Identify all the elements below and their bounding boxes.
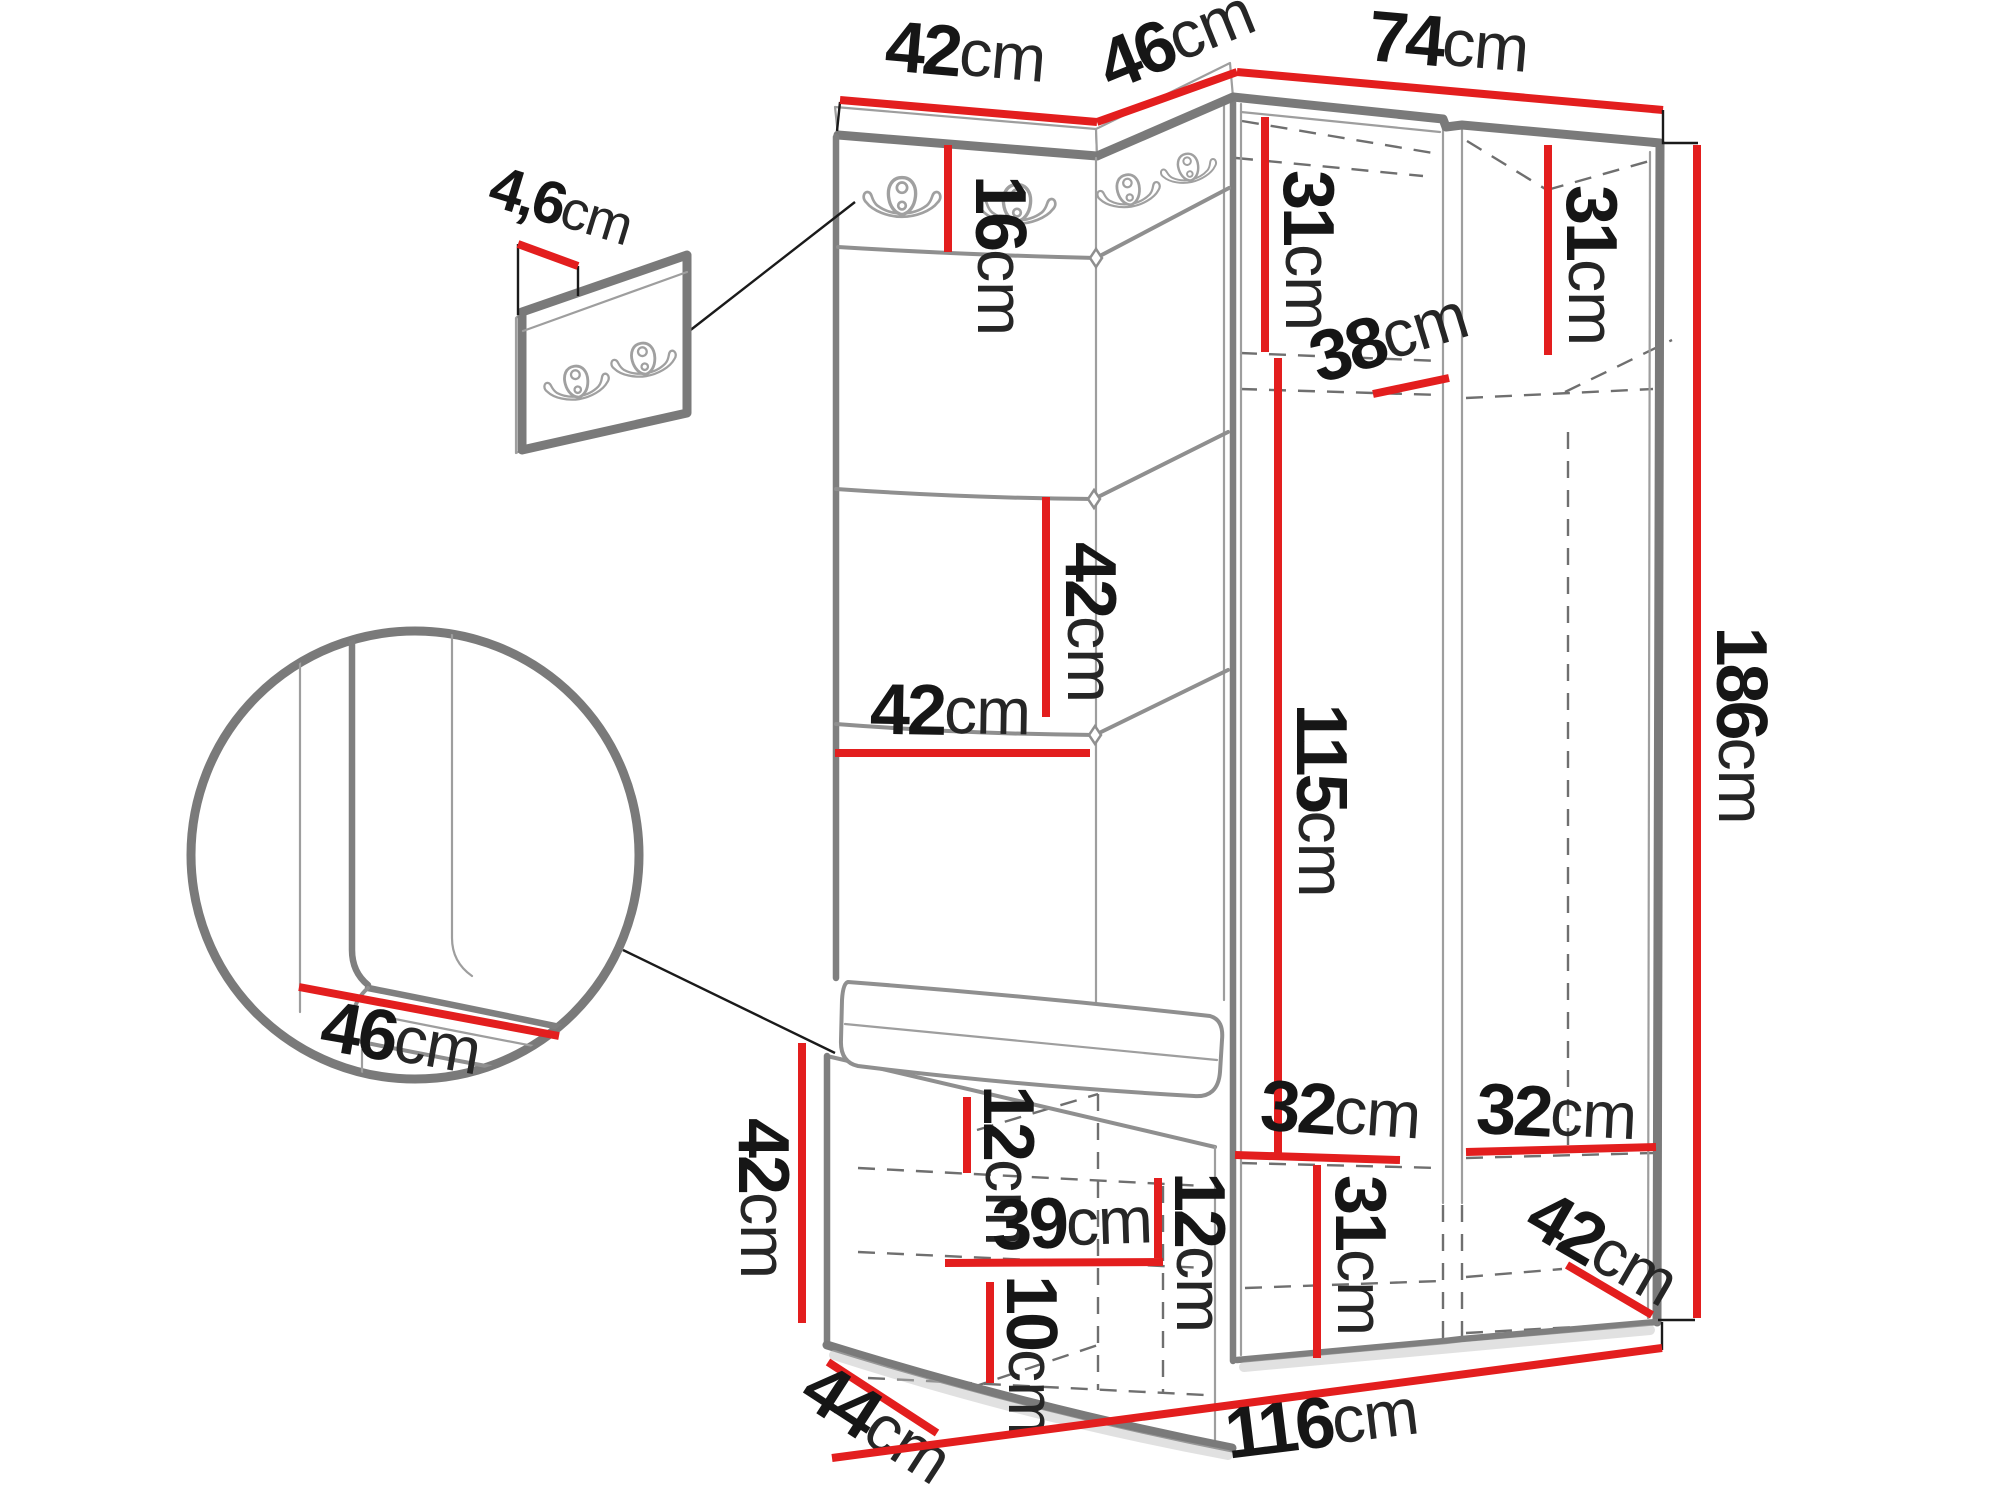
seam-2-corner [1094,432,1228,499]
seat-cushion-outline [841,982,1222,1096]
dim-label-top-panel-width: 42cm [882,6,1048,100]
wardrobe-right-inner-wall [1648,152,1650,1318]
diagram-stage: 42cm 46cm 74cm 4,6cm 16cm 31cm 31cm [0,0,2000,1500]
seat-corner-detail-circle [191,622,835,1094]
dim-bottom-section-height: 31cm [1317,1165,1400,1358]
dim-bottom-shelf-left: 32cm [1235,1066,1423,1160]
dim-right-section-top-height: 31cm [1548,145,1631,355]
dim-hook-band-height: 16cm [948,145,1040,335]
dim-label-panel-thickness: 4,6cm [482,152,641,259]
dim-label-right-section-top-height: 31cm [1551,185,1631,345]
panel-front-face [522,255,687,450]
dim-top-wardrobe-width: 74cm [1237,0,1663,110]
dim-label-left-section-top-height: 31cm [1268,170,1348,330]
dim-bottom-shelf-right: 32cm [1466,1069,1656,1157]
wardrobe-top-right-dash [1467,141,1547,190]
dim-label-total-width: 116cm [1221,1372,1422,1475]
dim-label-open-section-height: 115cm [1281,703,1361,896]
bottom-back-dash-right [1466,1269,1562,1277]
coat-hook-icon [1095,170,1162,212]
dim-label-top-wardrobe-width: 74cm [1365,0,1531,90]
dim-label-bottom-shelf-right: 32cm [1474,1069,1638,1157]
seat-cushion [841,982,1222,1096]
dim-panel-thickness: 4,6cm [482,152,641,266]
seam-hookband-corner [1096,188,1229,258]
circle-pointer-line [623,950,835,1053]
dim-open-section-height: 115cm [1278,358,1361,1156]
dim-label-total-height: 186cm [1701,626,1781,823]
diagram-canvas: 42cm 46cm 74cm 4,6cm 16cm 31cm 31cm [0,0,2000,1500]
dim-cushion-height: 42cm [1046,497,1130,717]
dim-line-panel-thickness [518,244,578,266]
dim-drawer-height: 12cm [1158,1172,1239,1332]
dim-line-shelf-depth [1373,378,1449,394]
dim-bottom-drawer-height: 10cm [990,1275,1071,1435]
dim-bracket-total-height-top [1663,110,1698,143]
coat-hook-icon [1158,148,1219,188]
dim-bottom-depth: 42cm [1513,1174,1692,1323]
dim-label-bottom-depth: 42cm [1513,1174,1692,1323]
dim-label-drawer-width: 39cm [990,1180,1153,1266]
dim-label-bench-height: 42cm [723,1118,803,1278]
bottom-shelf-left-dash [1240,1163,1440,1168]
dim-line-bottom-shelf-left [1235,1155,1400,1160]
wardrobe-right-edge [1657,143,1660,1322]
detail-pointer-line [688,202,855,332]
dim-bench-height: 42cm [723,1043,803,1323]
coat-hook-icon [864,178,941,217]
wardrobe-top-back-dash [1242,121,1433,153]
dim-label-bottom-drawer-height: 10cm [991,1275,1071,1435]
tuft-node-2 [1088,490,1100,508]
seam-2 [836,489,1094,499]
shelf-right-dash [1466,389,1653,398]
tuft-node-1 [1090,249,1102,267]
dim-total-height: 186cm [1658,110,1781,1320]
dim-label-cushion-width: 42cm [869,670,1030,753]
dim-label-bottom-section-height: 31cm [1320,1175,1400,1335]
dim-label-cushion-height: 42cm [1050,542,1130,702]
tuft-node-3 [1089,726,1101,744]
dim-label-bottom-shelf-left: 32cm [1258,1066,1423,1157]
dim-cushion-width: 42cm [835,670,1090,753]
dim-label-drawer-height: 12cm [1159,1172,1239,1332]
dim-label-hook-band-height: 16cm [960,175,1040,335]
